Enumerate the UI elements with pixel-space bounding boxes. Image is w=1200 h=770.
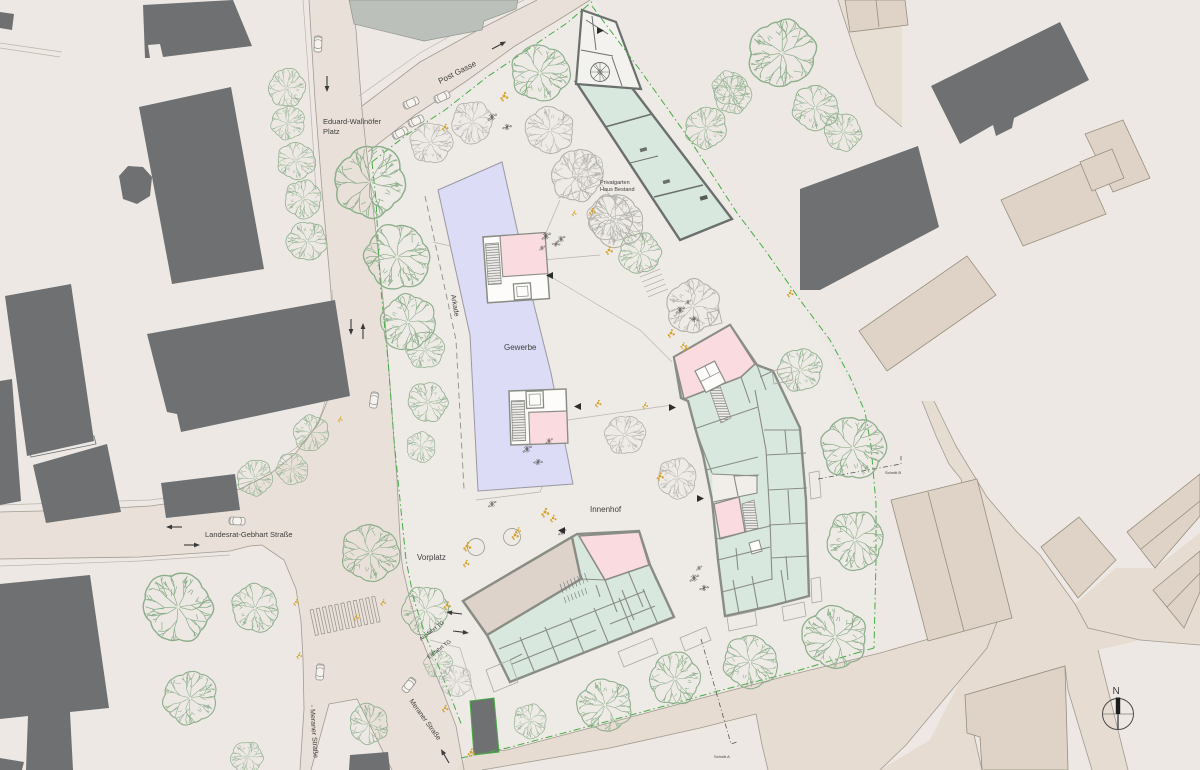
svg-text:Vorplatz: Vorplatz [417, 553, 446, 562]
svg-text:Schnitt A: Schnitt A [714, 754, 730, 759]
svg-text:Platz: Platz [323, 127, 340, 136]
svg-text:N: N [1113, 686, 1120, 697]
svg-text:Haus Bestand: Haus Bestand [600, 187, 635, 193]
svg-text:Eduard-Wallnöfer: Eduard-Wallnöfer [323, 117, 382, 126]
svg-text:Schnitt B: Schnitt B [885, 470, 901, 475]
svg-text:Landesrat-Gebhart Straße: Landesrat-Gebhart Straße [205, 530, 293, 539]
svg-text:Innenhof: Innenhof [590, 505, 622, 514]
svg-text:Privatgarten: Privatgarten [600, 180, 630, 186]
svg-text:Gewerbe: Gewerbe [504, 343, 537, 352]
